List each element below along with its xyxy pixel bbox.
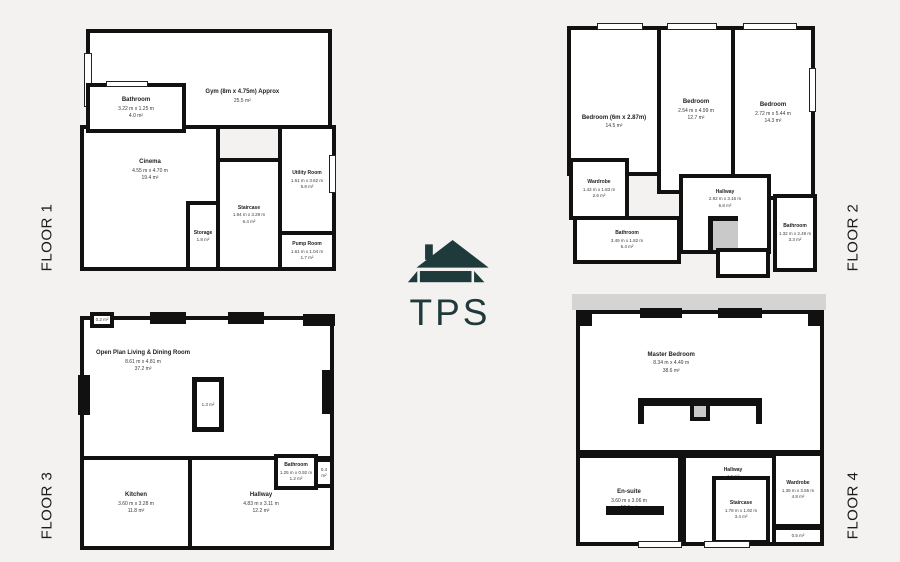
room-bathroom-right-f2: Bathroom 1.32 m x 2.49 m 3.3 m² — [773, 194, 817, 272]
window-frame — [78, 375, 90, 415]
room-bathroom-f1: Bathroom 3.22 m x 1.25 m 4.0 m² — [86, 83, 186, 133]
wardrobe-partition — [638, 398, 762, 424]
room-label: Bedroom 2.72 m x 5.44 m 14.3 m² — [735, 30, 811, 196]
window-frame — [640, 308, 682, 318]
logo-text: TPS — [410, 292, 491, 334]
room-corner-cupboard: 0.2 m² — [90, 312, 114, 328]
room-staircase-f4: Staircase 1.78 m x 1.92 m 3.4 m² — [712, 476, 770, 544]
house-icon — [407, 239, 493, 291]
room-label: Pump Room 1.61 m x 1.04 m 1.7 m² — [282, 235, 332, 267]
room-label: 0.5 m² — [776, 530, 820, 542]
room-landing-stub — [716, 248, 770, 278]
room-wardrobe-f4: Wardrobe 1.36 m x 3.55 m 4.8 m² — [772, 452, 824, 528]
vanity-counter — [606, 506, 664, 515]
floor2-label: FLOOR 2 — [836, 189, 870, 285]
floor4-label: FLOOR 4 — [836, 457, 870, 553]
window-frame — [228, 312, 264, 324]
room-staircase-f1: Staircase 1.94 m x 3.29 m 6.4 m² — [216, 158, 282, 271]
room-cupboard-f3: 0.4 m² — [314, 458, 334, 488]
floor3-label: FLOOR 3 — [30, 457, 64, 553]
room-storage: Storage 1.8 m² — [186, 201, 220, 271]
room-label: Hallway 2.92 m x 3.16 m 6.8 m² — [683, 178, 767, 220]
room-label: Wardrobe 1.42 m x 1.83 m 2.6 m² — [573, 162, 625, 216]
room-label: 0.4 m² — [318, 462, 330, 484]
room-label: Bedroom 2.54 m x 4.99 m 12.7 m² — [661, 30, 731, 190]
room-cupboard-f4: 0.5 m² — [772, 526, 824, 546]
wall-corner — [576, 310, 592, 326]
floorplan-floor3: Open Plan Living & Dining Room 8.61 m x … — [76, 310, 338, 554]
floorplan-page: Gym (8m x 4.75m) Approx 25.5 m² Cinema 4… — [0, 0, 900, 562]
room-label: Staircase 1.78 m x 1.92 m 3.4 m² — [716, 480, 766, 540]
room-label: Bathroom 1.25 m x 0.92 m 1.2 m² — [278, 458, 314, 486]
room-pump: Pump Room 1.61 m x 1.04 m 1.7 m² — [278, 231, 336, 271]
structural-column: 1.3 m² — [192, 377, 224, 432]
room-label: Staircase 1.94 m x 3.29 m 6.4 m² — [220, 162, 278, 267]
room-label: 1.3 m² — [197, 382, 219, 427]
window — [329, 155, 336, 193]
room-label: Utility Room 1.61 m x 3.62 m 5.8 m² — [282, 129, 332, 231]
room-label: En-suite 3.60 m x 3.06 m 10.5 m² — [580, 458, 678, 542]
window — [667, 23, 717, 30]
room-label: Bathroom 1.32 m x 2.49 m 3.3 m² — [777, 198, 813, 268]
room-ensuite: En-suite 3.60 m x 3.06 m 10.5 m² — [576, 454, 682, 546]
window — [638, 541, 682, 548]
room-utility: Utility Room 1.61 m x 3.62 m 5.8 m² — [278, 125, 336, 235]
room-kitchen: Kitchen 3.60 m x 3.28 m 11.8 m² — [80, 456, 192, 550]
window-frame — [303, 314, 335, 326]
room-wardrobe-f2: Wardrobe 1.42 m x 1.83 m 2.6 m² — [569, 158, 629, 220]
room-master-bedroom: Master Bedroom 8.34 m x 4.49 m 38.6 m² — [576, 310, 824, 454]
room-label: 0.2 m² — [94, 316, 110, 324]
room-label: Kitchen 3.60 m x 3.28 m 11.8 m² — [84, 460, 188, 546]
room-bathroom-left-f2: Bathroom 3.49 m x 1.82 m 6.4 m² — [573, 216, 681, 264]
window — [743, 23, 797, 30]
window — [106, 81, 148, 87]
window — [704, 541, 750, 548]
room-label: Bathroom 3.49 m x 1.82 m 6.4 m² — [577, 220, 677, 260]
tps-logo: TPS — [392, 239, 508, 334]
room-label: Storage 1.8 m² — [190, 205, 216, 267]
window — [809, 68, 816, 112]
floor1-label: FLOOR 1 — [30, 189, 64, 285]
floorplan-floor2: Bedroom (6m x 2.87m) 14.5 m² Bedroom 2.5… — [563, 18, 819, 278]
stair-void — [708, 216, 738, 250]
room-label: Cinema 4.55 m x 4.70 m 19.4 m² — [84, 129, 216, 212]
floorplan-floor4: Master Bedroom 8.34 m x 4.49 m 38.6 m² E… — [568, 294, 832, 552]
window-frame — [322, 370, 334, 414]
room-bedroom-left: Bedroom (6m x 2.87m) 14.5 m² — [567, 26, 661, 176]
window-frame — [150, 312, 186, 324]
floorplan-floor1: Gym (8m x 4.75m) Approx 25.5 m² Cinema 4… — [78, 25, 336, 271]
room-bathroom-f3: Bathroom 1.25 m x 0.92 m 1.2 m² — [274, 454, 318, 490]
room-bedroom-middle: Bedroom 2.54 m x 4.99 m 12.7 m² — [657, 26, 735, 194]
window-frame — [718, 308, 762, 318]
room-label: Bathroom 3.22 m x 1.25 m 4.0 m² — [90, 87, 182, 129]
window — [597, 23, 643, 30]
room-label: Wardrobe 1.36 m x 3.55 m 4.8 m² — [776, 456, 820, 524]
partition-niche — [690, 406, 710, 421]
terrace-band — [572, 294, 826, 310]
wall-corner — [808, 310, 824, 326]
room-label: Open Plan Living & Dining Room 8.61 m x … — [84, 320, 202, 403]
